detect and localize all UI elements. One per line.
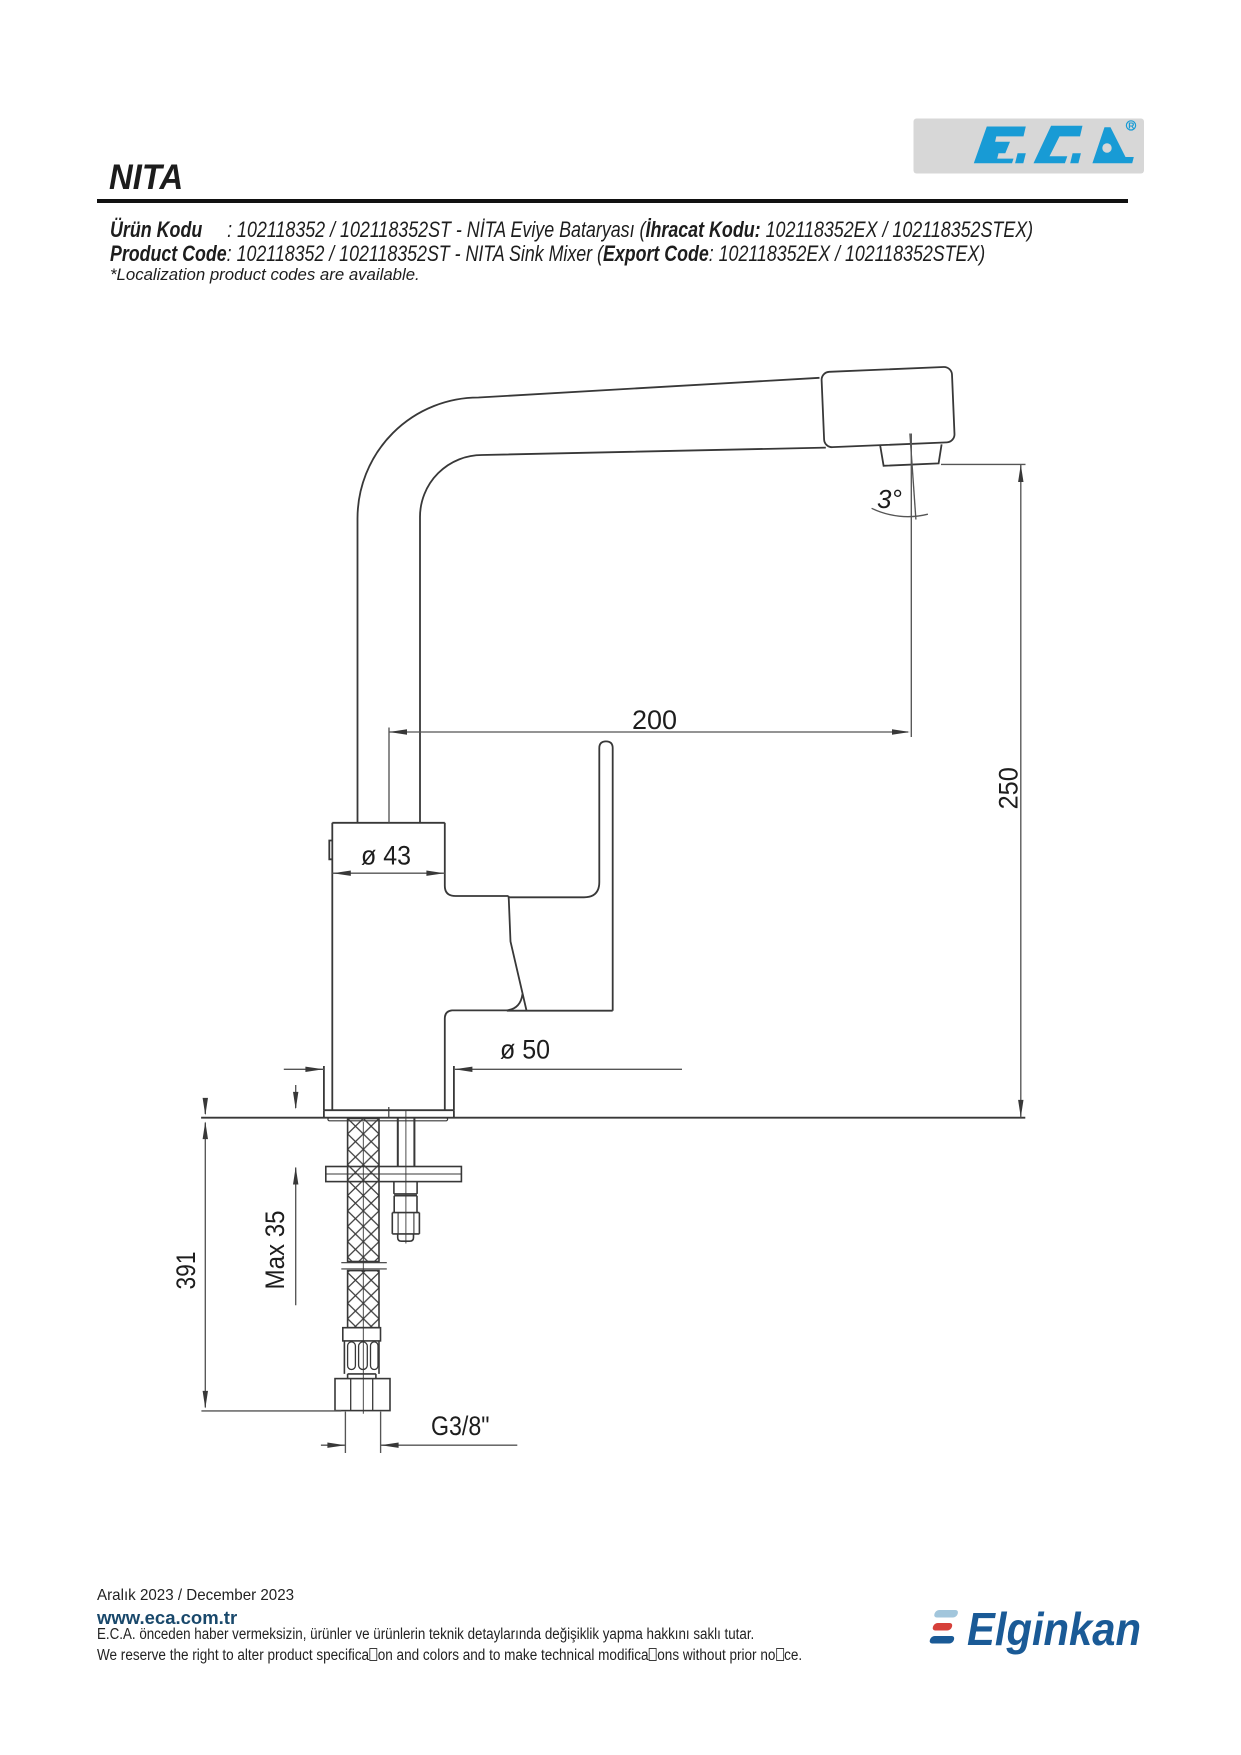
svg-text:Elginkan: Elginkan	[967, 1603, 1141, 1655]
svg-text:ø 50: ø 50	[500, 1035, 550, 1065]
svg-text:250: 250	[994, 767, 1024, 809]
svg-text:G3/8": G3/8"	[431, 1411, 490, 1441]
svg-text:ø 43: ø 43	[361, 841, 411, 871]
svg-text:Max 35: Max 35	[260, 1211, 290, 1290]
svg-text:200: 200	[632, 705, 677, 735]
svg-text:3°: 3°	[877, 484, 902, 514]
svg-text:391: 391	[171, 1252, 201, 1290]
